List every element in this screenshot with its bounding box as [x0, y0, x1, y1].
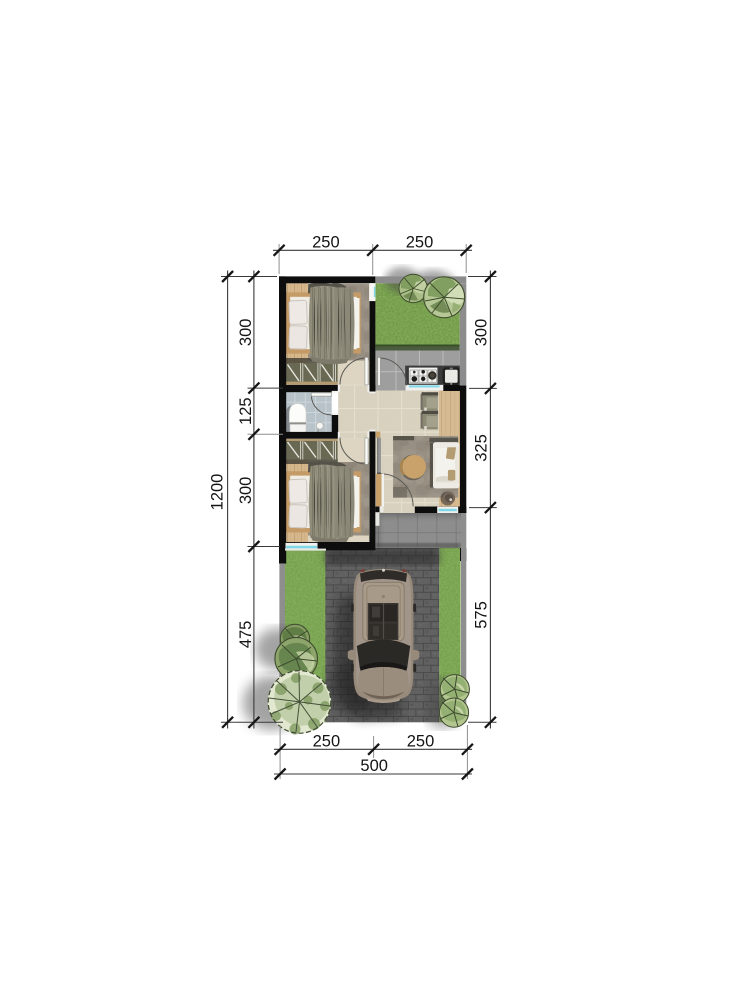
svg-text:300: 300 — [473, 319, 491, 347]
svg-text:300: 300 — [237, 477, 255, 505]
svg-text:250: 250 — [313, 732, 341, 750]
svg-text:125: 125 — [237, 397, 255, 425]
svg-text:475: 475 — [237, 621, 255, 649]
svg-text:300: 300 — [237, 319, 255, 347]
svg-text:325: 325 — [473, 434, 491, 462]
svg-text:1200: 1200 — [209, 474, 227, 511]
svg-text:250: 250 — [407, 732, 435, 750]
svg-text:250: 250 — [406, 233, 434, 251]
svg-text:575: 575 — [473, 601, 491, 629]
svg-text:500: 500 — [360, 757, 388, 775]
svg-text:250: 250 — [312, 233, 340, 251]
